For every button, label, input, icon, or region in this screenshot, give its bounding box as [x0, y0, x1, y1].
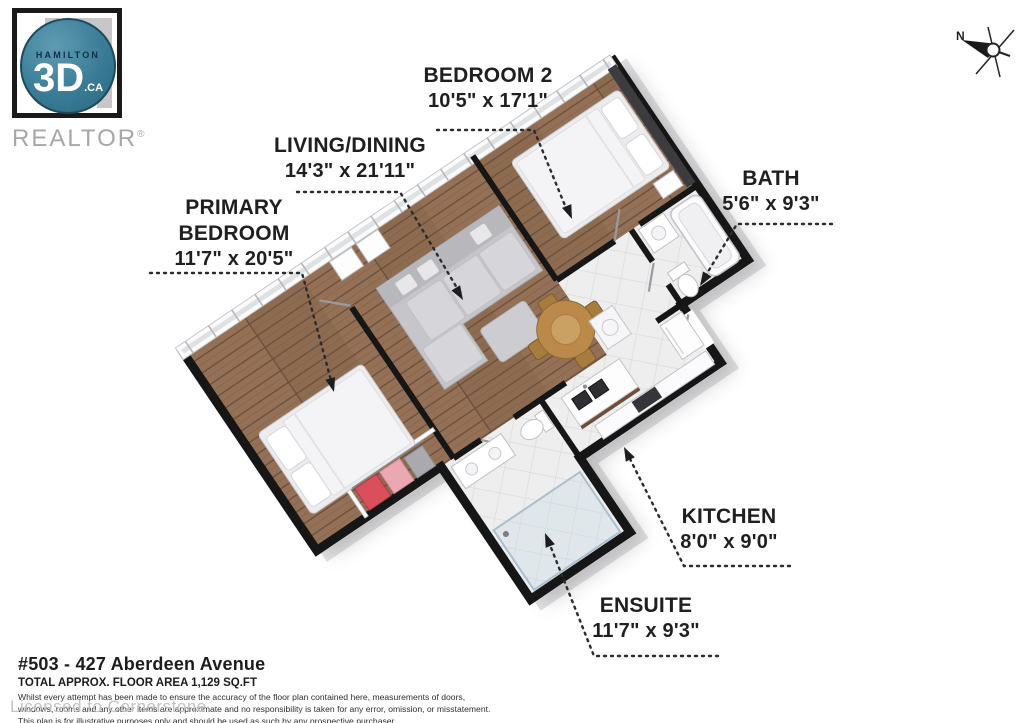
label-ensuite: ENSUITE 11'7" x 9'3" — [551, 593, 741, 644]
room-dims: 8'0" x 9'0" — [639, 530, 819, 555]
label-kitchen: KITCHEN 8'0" x 9'0" — [639, 504, 819, 555]
room-name: BATH — [696, 166, 846, 192]
label-primary-bedroom: PRIMARY BEDROOM 11'7" x 20'5" — [159, 195, 309, 272]
logo-teal-circle: HAMILTON 3D.CA — [20, 18, 116, 114]
room-name: ENSUITE — [551, 593, 741, 619]
room-dims: 14'3" x 21'11" — [250, 159, 450, 184]
logo-tld: .CA — [84, 82, 103, 94]
arrow-kitchen — [624, 447, 635, 462]
total-area: TOTAL APPROX. FLOOR AREA 1,129 SQ.FT — [18, 677, 718, 689]
license-watermark: Licensed to Cornerstone — [10, 697, 207, 717]
room-name: PRIMARY BEDROOM — [159, 195, 309, 247]
label-bedroom-2: BEDROOM 2 10'5" x 17'1" — [388, 63, 588, 114]
room-dims: 5'6" x 9'3" — [696, 192, 846, 217]
label-living-dining: LIVING/DINING 14'3" x 21'11" — [250, 133, 450, 184]
room-dims: 11'7" x 20'5" — [159, 247, 309, 272]
label-bath: BATH 5'6" x 9'3" — [696, 166, 846, 217]
realtor-text: REALTOR — [12, 125, 137, 152]
logo-square: HAMILTON 3D.CA — [12, 8, 122, 118]
compass-north-label: N — [956, 29, 965, 43]
hamilton3d-logo: HAMILTON 3D.CA REALTOR® — [12, 8, 162, 153]
registered-mark: ® — [137, 129, 146, 140]
room-name: LIVING/DINING — [250, 133, 450, 159]
room-name: KITCHEN — [639, 504, 819, 530]
logo-3d-main: 3D — [33, 56, 84, 100]
realtor-wordmark: REALTOR® — [12, 125, 162, 153]
north-compass-icon: N — [956, 27, 1014, 77]
floor-plan-page: N BEDROOM 2 10'5" x 17'1" LIVING/DINING … — [0, 0, 1024, 723]
room-dims: 11'7" x 9'3" — [551, 619, 741, 644]
listing-address: #503 - 427 Aberdeen Avenue — [18, 654, 718, 675]
room-dims: 10'5" x 17'1" — [388, 89, 588, 114]
room-name: BEDROOM 2 — [388, 63, 588, 89]
logo-3d-text: 3D.CA — [22, 58, 114, 98]
